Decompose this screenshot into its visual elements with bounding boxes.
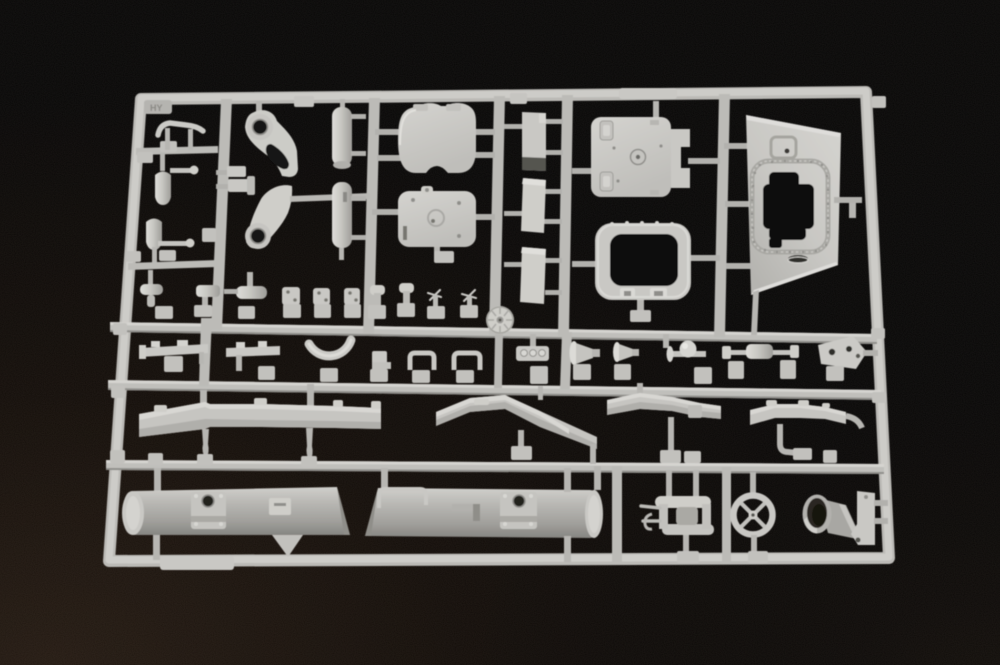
svg-text:HY: HY xyxy=(150,103,163,113)
